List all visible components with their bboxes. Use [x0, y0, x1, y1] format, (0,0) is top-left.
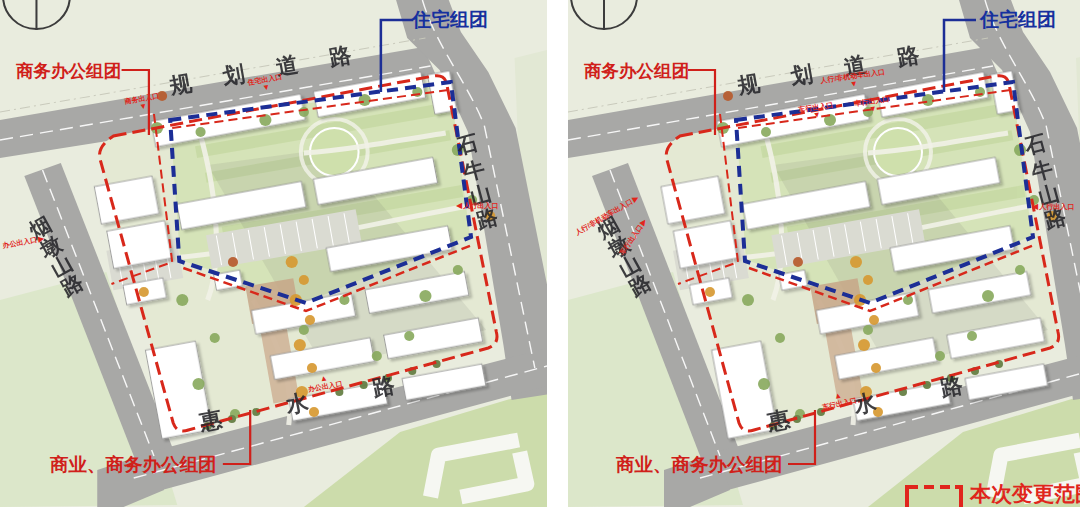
arrow-right-icon: ▶ — [37, 235, 44, 244]
callout-commercial-business: 商业、商务办公组团 — [616, 455, 783, 475]
callout-business-office: 商务办公组团 — [584, 62, 689, 81]
callout-commercial-business: 商业、商务办公组团 — [50, 455, 217, 475]
site-plan-before: 商务办公组团 住宅组团 商业、商务办公组团 规划道路 石牛山路 烟墩山路 惠水路… — [0, 0, 547, 507]
callout-residential: 住宅组团 — [412, 10, 488, 31]
callout-business-office: 商务办公组团 — [16, 62, 121, 81]
arrow-down-icon: ▼ — [868, 105, 877, 114]
entrance-text: 人行出入口 — [1039, 203, 1074, 211]
comparison-canvas: 商务办公组团 住宅组团 商业、商务办公组团 规划道路 石牛山路 烟墩山路 惠水路… — [0, 0, 1080, 507]
legend-change-scope: 本次变更范围 — [903, 482, 1080, 507]
arrow-left-icon: ◀ — [1032, 203, 1038, 211]
arrow-left-icon: ◀ — [456, 202, 462, 210]
callout-residential: 住宅组团 — [980, 10, 1056, 31]
entrance-text: 人行出入口 — [463, 202, 498, 210]
dashed-boundary-swatch-icon — [903, 482, 963, 507]
entrance-pedestrian: ◀ 人行出入口 — [456, 202, 498, 210]
arrow-down-icon: ▼ — [849, 80, 858, 89]
arrow-down-icon: ▼ — [139, 102, 148, 111]
entrance-pedestrian-east: ◀ 人行出入口 — [1032, 203, 1074, 211]
arrow-down-icon: ▼ — [812, 111, 821, 120]
legend-label: 本次变更范围 — [970, 482, 1080, 505]
site-plan-after: 商务办公组团 住宅组团 商业、商务办公组团 规划道路 石牛山路 烟墩山路 惠水路… — [568, 0, 1080, 507]
arrow-down-icon: ▼ — [262, 83, 271, 92]
